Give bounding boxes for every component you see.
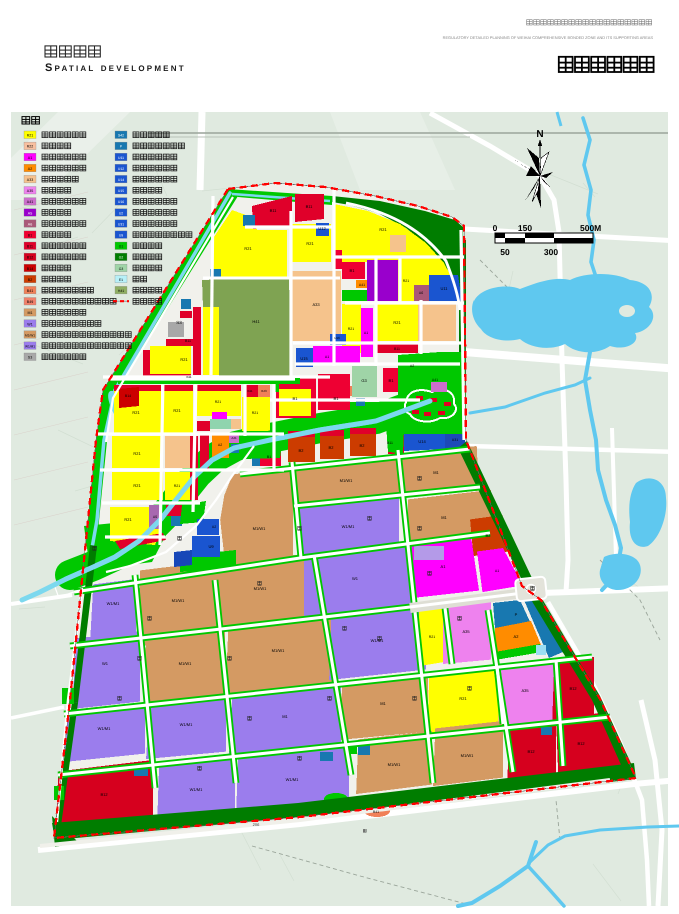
svg-text:A41: A41	[27, 200, 33, 204]
svg-text:B41: B41	[373, 810, 379, 814]
svg-text:W1/M1: W1/M1	[180, 722, 193, 727]
svg-text:R22: R22	[27, 145, 34, 149]
svg-text:W1: W1	[102, 661, 109, 666]
svg-text:B14: B14	[27, 267, 33, 271]
svg-text:R21: R21	[244, 246, 252, 251]
svg-text:U15: U15	[118, 189, 124, 193]
svg-text:B1: B1	[334, 396, 340, 401]
svg-text:A35: A35	[462, 629, 470, 634]
svg-text:G3: G3	[119, 267, 124, 271]
svg-text:U31: U31	[452, 438, 458, 442]
svg-text:M1/W1: M1/W1	[461, 753, 474, 758]
svg-text:R21: R21	[429, 635, 435, 639]
svg-text:206: 206	[253, 822, 260, 827]
svg-text:A1: A1	[364, 331, 368, 335]
svg-text:W1/M1: W1/M1	[25, 345, 35, 349]
svg-text:R21: R21	[306, 241, 314, 246]
svg-text:0: 0	[493, 223, 498, 233]
svg-text:P: P	[515, 612, 518, 617]
svg-text:A41: A41	[432, 378, 438, 382]
svg-text:A2: A2	[28, 167, 32, 171]
svg-text:B1: B1	[389, 378, 395, 383]
svg-text:A35: A35	[521, 688, 529, 693]
svg-text:A6: A6	[28, 222, 32, 226]
svg-text:R21: R21	[348, 327, 354, 331]
svg-text:G3: G3	[361, 378, 367, 383]
svg-text:U31: U31	[118, 222, 124, 226]
svg-text:B2: B2	[299, 448, 305, 453]
svg-text:R21: R21	[180, 357, 188, 362]
svg-text:B11: B11	[185, 339, 191, 343]
svg-text:U2: U2	[212, 525, 217, 529]
svg-text:B2: B2	[28, 278, 32, 282]
svg-text:R21: R21	[252, 411, 258, 415]
svg-text:A1: A1	[441, 564, 447, 569]
svg-text:H41: H41	[252, 319, 260, 324]
svg-text:A1: A1	[28, 156, 32, 160]
svg-text:S3: S3	[176, 320, 182, 325]
svg-text:A2: A2	[410, 364, 414, 368]
svg-text:W1: W1	[352, 576, 359, 581]
svg-text:M1: M1	[433, 470, 439, 475]
svg-text:B2: B2	[486, 533, 492, 538]
svg-text:R21: R21	[133, 451, 141, 456]
svg-text:U16: U16	[334, 336, 340, 340]
svg-text:W1/M1: W1/M1	[98, 726, 111, 731]
svg-text:U12: U12	[118, 167, 124, 171]
svg-text:M1: M1	[441, 515, 447, 520]
svg-text:U2: U2	[119, 211, 123, 215]
svg-text:B49: B49	[27, 300, 33, 304]
svg-text:A41: A41	[359, 283, 365, 287]
svg-text:REGULATORY DETAILED PLANNING O: REGULATORY DETAILED PLANNING OF WEIHAI C…	[443, 35, 654, 40]
svg-text:U11: U11	[118, 156, 124, 160]
svg-text:A5: A5	[153, 515, 157, 519]
svg-text:R21: R21	[174, 484, 180, 488]
svg-text:B11: B11	[387, 441, 393, 445]
svg-text:R21: R21	[132, 410, 140, 415]
svg-text:B49: B49	[261, 389, 267, 393]
svg-text:300: 300	[544, 247, 558, 257]
svg-text:U14: U14	[118, 178, 124, 182]
svg-text:B1: B1	[293, 396, 299, 401]
svg-text:Spatial development: Spatial development	[45, 62, 186, 74]
svg-text:R21: R21	[27, 134, 34, 138]
svg-text:B12: B12	[527, 749, 535, 754]
svg-text:B11: B11	[270, 208, 278, 213]
svg-text:A6: A6	[419, 291, 423, 295]
svg-text:A2: A2	[514, 634, 520, 639]
svg-text:A5: A5	[28, 211, 32, 215]
svg-text:M1/W1: M1/W1	[179, 661, 192, 666]
svg-text:B11: B11	[186, 375, 191, 379]
svg-text:M1: M1	[380, 701, 386, 706]
svg-text:A35: A35	[27, 189, 33, 193]
svg-text:G2: G2	[119, 256, 124, 260]
svg-text:B12: B12	[577, 741, 585, 746]
svg-text:R21: R21	[403, 279, 409, 283]
svg-text:U12: U12	[318, 226, 326, 231]
svg-text:M1/W1: M1/W1	[172, 598, 185, 603]
svg-text:B12: B12	[27, 256, 33, 260]
svg-text:M1/W1: M1/W1	[340, 478, 353, 483]
svg-text:R21: R21	[459, 696, 467, 701]
svg-text:R21: R21	[379, 227, 387, 232]
svg-text:W1/M1: W1/M1	[286, 777, 299, 782]
svg-text:B1: B1	[267, 455, 271, 459]
svg-text:R21: R21	[133, 483, 141, 488]
svg-text:S3: S3	[28, 356, 32, 360]
svg-text:M1/W1: M1/W1	[253, 526, 266, 531]
svg-text:M1/W1: M1/W1	[272, 648, 285, 653]
svg-text:150: 150	[518, 223, 532, 233]
svg-text:A1: A1	[495, 569, 499, 573]
svg-text:M1/W1: M1/W1	[388, 762, 401, 767]
svg-text:W1/M1: W1/M1	[190, 787, 203, 792]
svg-text:R21: R21	[393, 320, 401, 325]
svg-text:A2: A2	[218, 443, 222, 447]
svg-text:B11: B11	[394, 347, 400, 351]
svg-text:50: 50	[500, 247, 510, 257]
svg-text:A33: A33	[27, 178, 33, 182]
svg-text:A41: A41	[231, 436, 237, 440]
svg-text:B11: B11	[247, 389, 252, 393]
svg-text:U9: U9	[119, 234, 123, 238]
svg-text:M1: M1	[282, 714, 288, 719]
svg-text:A33: A33	[312, 302, 320, 307]
svg-text:R21: R21	[173, 408, 181, 413]
svg-text:N: N	[536, 129, 543, 140]
svg-text:B2: B2	[360, 443, 366, 448]
svg-text:M1: M1	[28, 311, 33, 315]
svg-text:R21: R21	[215, 400, 221, 404]
svg-text:B1: B1	[28, 234, 32, 238]
svg-text:B11: B11	[306, 204, 314, 209]
svg-text:G1: G1	[119, 245, 124, 249]
svg-text:M1/W1: M1/W1	[25, 333, 35, 337]
svg-text:U11: U11	[440, 286, 448, 291]
svg-text:B12: B12	[569, 686, 577, 691]
svg-text:E1: E1	[119, 278, 123, 282]
svg-text:W1: W1	[27, 322, 32, 326]
svg-text:B1: B1	[350, 268, 356, 273]
svg-text:S42: S42	[118, 134, 124, 138]
svg-text:W1/M1: W1/M1	[342, 524, 355, 529]
svg-text:A1: A1	[325, 355, 329, 359]
svg-text:U16: U16	[118, 200, 124, 204]
svg-text:U15: U15	[300, 356, 308, 361]
svg-text:B12: B12	[100, 792, 108, 797]
svg-text:U9: U9	[208, 544, 214, 549]
svg-text:R21: R21	[124, 517, 132, 522]
svg-text:B14: B14	[125, 394, 131, 398]
svg-text:B11: B11	[27, 245, 33, 249]
svg-text:B41: B41	[27, 289, 33, 293]
svg-text:M1/W1: M1/W1	[254, 586, 267, 591]
svg-text:H41: H41	[118, 289, 124, 293]
svg-text:B2: B2	[329, 445, 335, 450]
svg-text:500M: 500M	[580, 223, 601, 233]
svg-text:U14: U14	[418, 439, 426, 444]
svg-text:W1/M1: W1/M1	[107, 601, 120, 606]
